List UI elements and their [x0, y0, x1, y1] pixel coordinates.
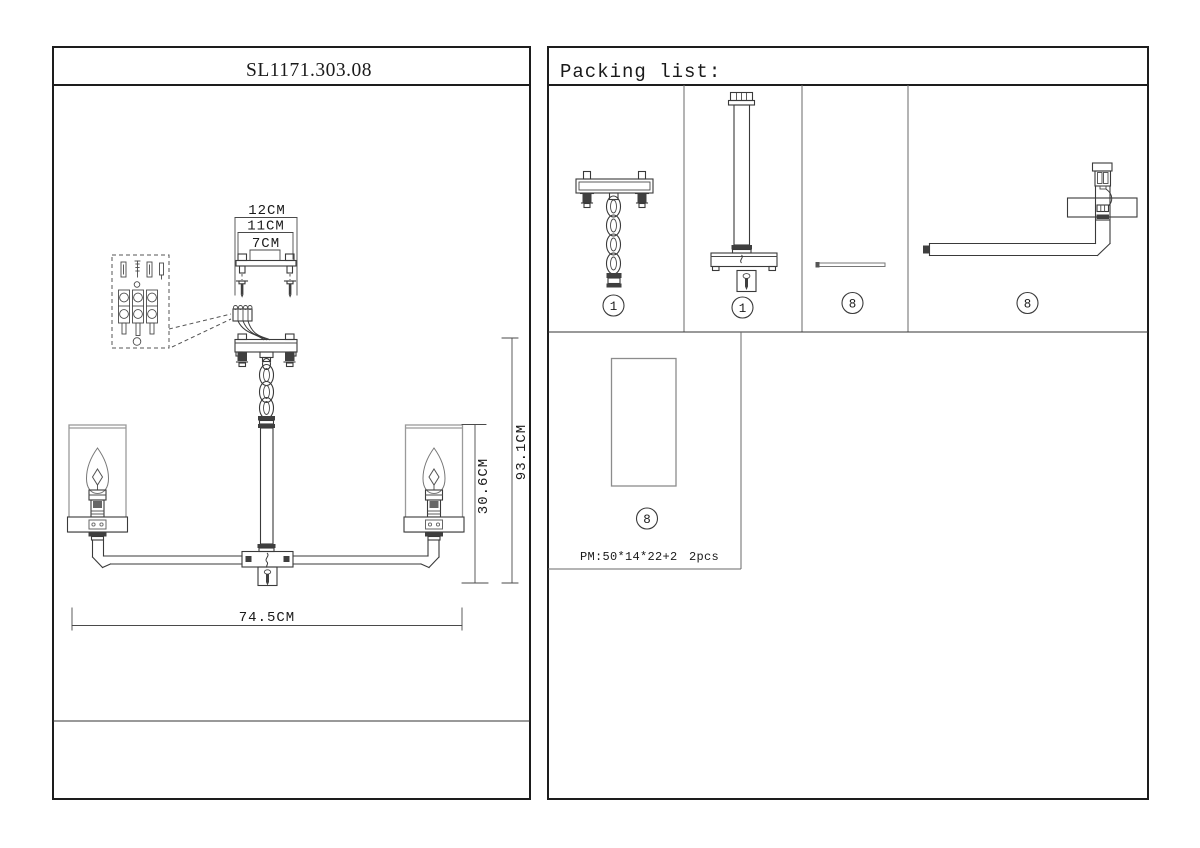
- canopy-bolt: [238, 352, 248, 361]
- packing-item-rod-canopy: 1: [711, 93, 777, 319]
- terminal-strip: [133, 290, 144, 336]
- mounting-bracket: [236, 254, 296, 298]
- item-1-number: 1: [610, 300, 618, 314]
- packing-item-ceiling-plate: 1: [576, 172, 653, 317]
- item-number-badge: 1: [732, 297, 753, 318]
- screw: [135, 261, 140, 277]
- candle-assembly-right: [404, 425, 464, 540]
- dim-mount-outer: 12CM: [248, 203, 286, 219]
- packing-item-glass-shade: 8 PM:50*14*22+2 2pcs: [580, 359, 719, 565]
- canopy-bolt: [285, 352, 295, 361]
- center-rod: [261, 428, 274, 544]
- center-hub: [242, 552, 293, 586]
- right-arm: [293, 540, 439, 568]
- item-5-number: 8: [643, 513, 651, 527]
- dim-shade-height: 30.6CM: [476, 458, 492, 514]
- packing-list-panel: Packing list:: [548, 47, 1148, 799]
- item-number-badge: 8: [637, 508, 658, 529]
- screw: [160, 263, 164, 275]
- nut: [134, 282, 140, 288]
- height-dimensions: 30.6CM 93.1CM: [462, 338, 530, 583]
- leader-line: [169, 314, 231, 329]
- packing-panel-border: [548, 47, 1148, 799]
- width-dimension: 74.5CM: [72, 608, 462, 630]
- model-number: SL1171.303.08: [246, 60, 372, 81]
- expansion-screw: [237, 281, 248, 298]
- terminal-block: [233, 306, 270, 341]
- terminal-strip: [119, 290, 130, 334]
- hardware-detail-box: [112, 255, 231, 348]
- item-number-badge: 1: [603, 295, 624, 316]
- nut: [133, 338, 141, 346]
- fixture-panel-border: [53, 47, 530, 799]
- glass-shade-outline: [612, 359, 677, 487]
- item-3-number: 8: [849, 298, 857, 312]
- packing-item-arm-socket: 8: [923, 163, 1137, 314]
- candle-assembly-left: [68, 425, 128, 540]
- item-5-spec: PM:50*14*22+2: [580, 550, 678, 564]
- item-number-badge: 8: [842, 293, 863, 314]
- packing-list-title: Packing list:: [560, 61, 721, 83]
- dim-overall-height: 93.1CM: [514, 424, 530, 480]
- item-5-qty: 2pcs: [689, 550, 719, 564]
- leader-line: [172, 319, 231, 347]
- fixture-panel: SL1171.303.08 12CM 11CM 7CM: [53, 47, 530, 799]
- technical-drawing-sheet: SL1171.303.08 12CM 11CM 7CM: [0, 0, 1200, 848]
- terminal-strip: [147, 290, 158, 334]
- item-2-number: 1: [739, 302, 747, 316]
- suspension-chain: [258, 359, 275, 429]
- expansion-screw: [285, 281, 296, 298]
- packing-item-connector-pin: 8: [816, 262, 886, 314]
- dim-overall-width: 74.5CM: [239, 610, 295, 626]
- left-arm: [93, 540, 243, 568]
- item-4-number: 8: [1024, 298, 1032, 312]
- item-number-badge: 8: [1017, 293, 1038, 314]
- drawing-svg: SL1171.303.08 12CM 11CM 7CM: [0, 0, 1200, 848]
